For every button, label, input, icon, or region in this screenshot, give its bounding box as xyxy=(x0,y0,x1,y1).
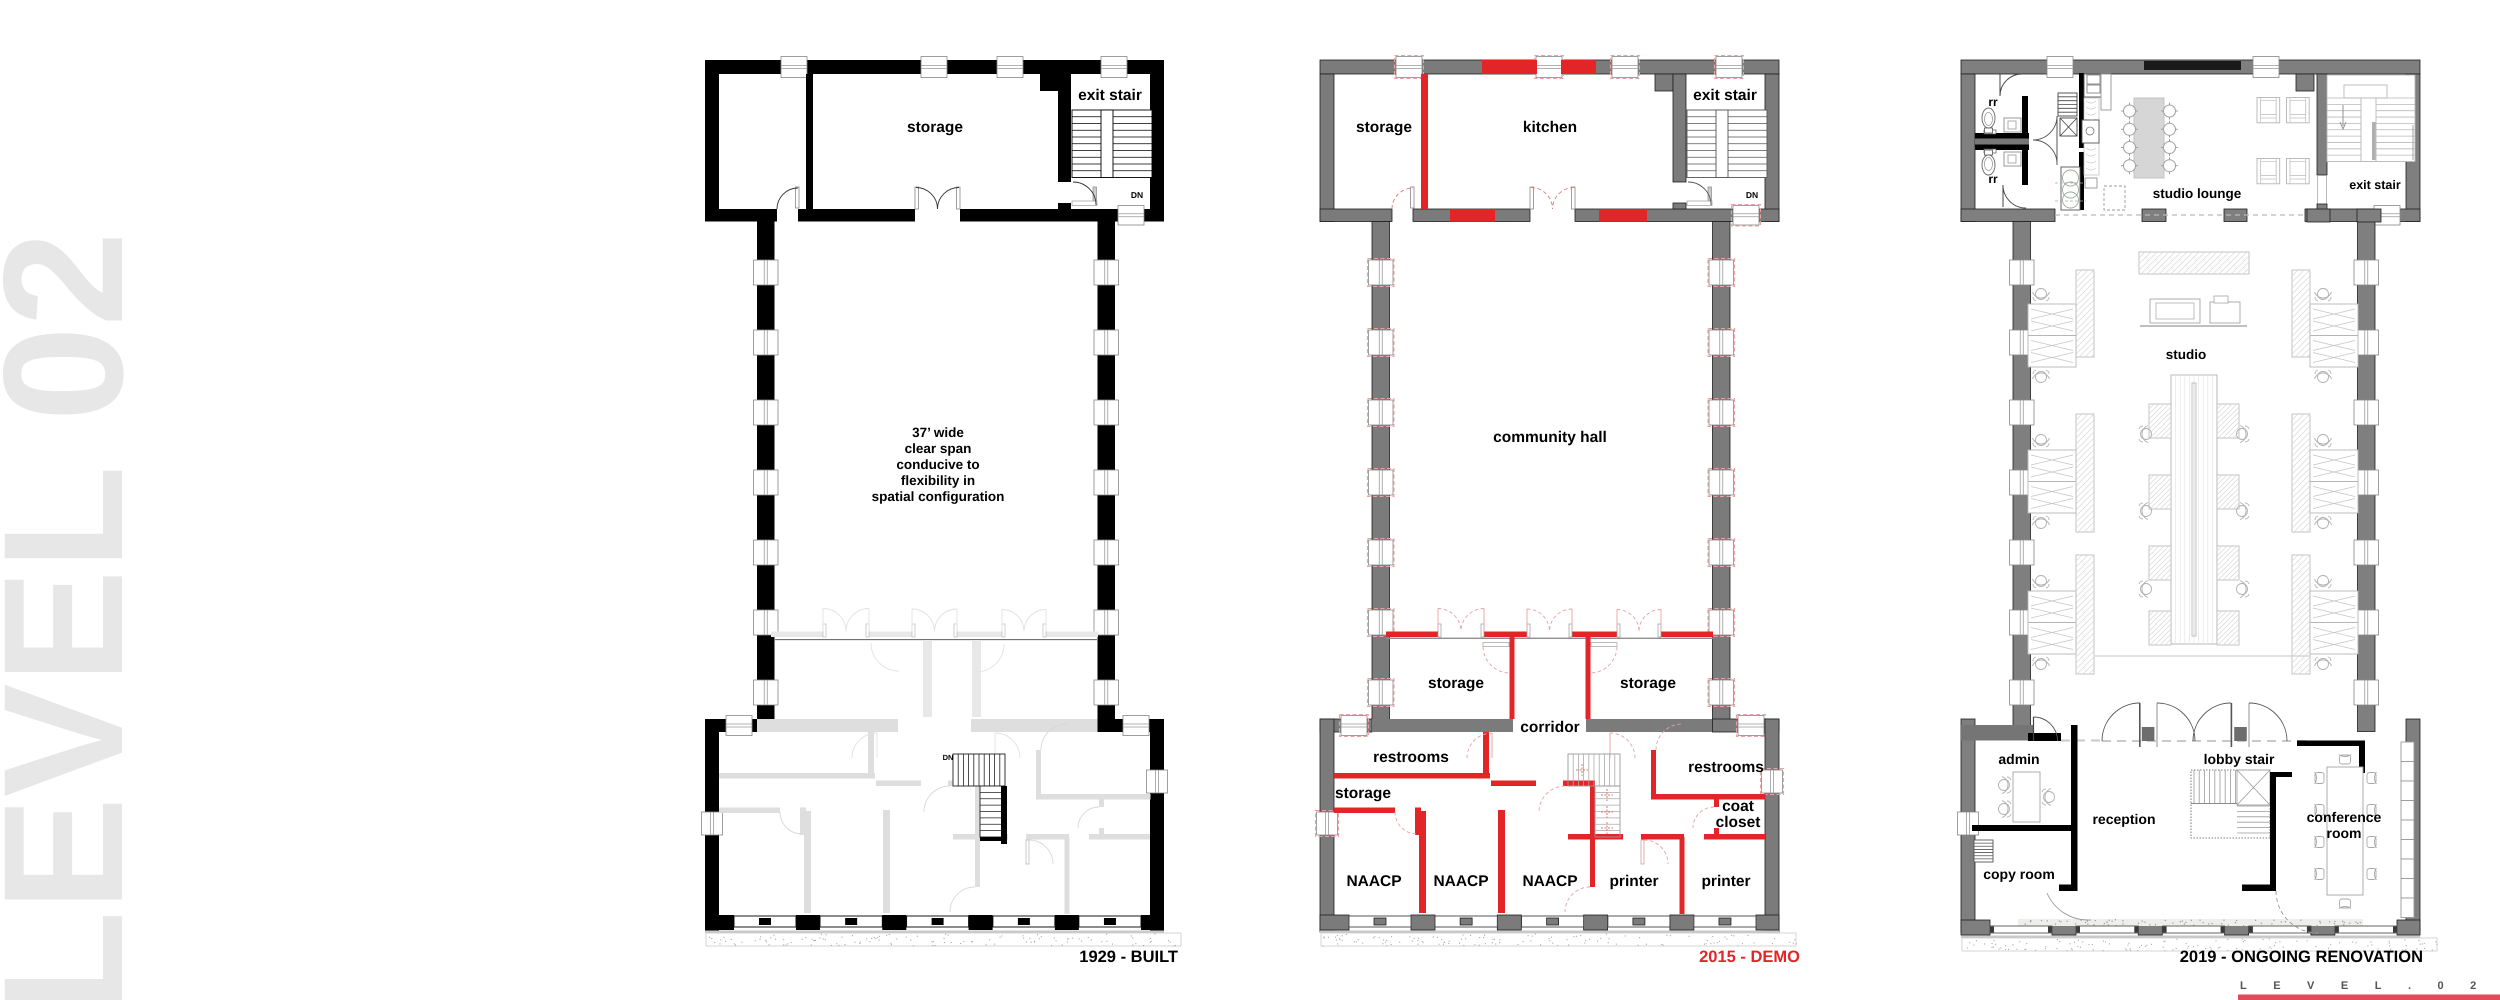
svg-text:2015 - DEMO: 2015 - DEMO xyxy=(1699,948,1800,966)
svg-text:DN: DN xyxy=(943,753,954,762)
svg-text:clear span: clear span xyxy=(905,441,972,456)
svg-text:restrooms: restrooms xyxy=(1373,749,1449,766)
svg-text:1929 - BUILT: 1929 - BUILT xyxy=(1079,948,1178,966)
svg-text:room: room xyxy=(2327,825,2362,841)
svg-text:storage: storage xyxy=(1428,675,1484,692)
svg-text:flexibility in: flexibility in xyxy=(901,473,975,488)
svg-text:LEVEL 02: LEVEL 02 xyxy=(0,232,159,1000)
svg-text:admin: admin xyxy=(1998,751,2039,767)
svg-text:printer: printer xyxy=(1701,873,1750,890)
svg-text:exit stair: exit stair xyxy=(1693,87,1757,104)
svg-text:community hall: community hall xyxy=(1493,429,1607,446)
svg-text:2019 - ONGOING RENOVATION: 2019 - ONGOING RENOVATION xyxy=(2180,948,2423,966)
svg-text:storage: storage xyxy=(907,119,963,136)
svg-text:studio lounge: studio lounge xyxy=(2153,186,2242,201)
svg-text:studio: studio xyxy=(2166,347,2207,362)
svg-text:storage: storage xyxy=(1335,785,1391,802)
svg-text:rr: rr xyxy=(1988,172,1998,186)
svg-text:conference: conference xyxy=(2307,809,2382,825)
svg-text:coat: coat xyxy=(1722,798,1754,815)
svg-text:copy room: copy room xyxy=(1983,866,2055,882)
svg-text:exit stair: exit stair xyxy=(2349,178,2401,192)
svg-text:lobby stair: lobby stair xyxy=(2204,751,2275,767)
svg-text:LEVEL.02: LEVEL.02 xyxy=(2240,980,2500,992)
svg-text:corridor: corridor xyxy=(1520,719,1579,736)
svg-text:reception: reception xyxy=(2092,811,2155,827)
svg-text:storage: storage xyxy=(1356,119,1412,136)
svg-text:spatial configuration: spatial configuration xyxy=(872,489,1005,504)
svg-text:DN: DN xyxy=(1746,190,1758,200)
svg-text:37’ wide: 37’ wide xyxy=(912,425,964,440)
svg-text:kitchen: kitchen xyxy=(1523,119,1577,136)
svg-text:storage: storage xyxy=(1620,675,1676,692)
svg-text:closet: closet xyxy=(1716,814,1761,831)
svg-text:NAACP: NAACP xyxy=(1433,873,1488,890)
svg-text:rr: rr xyxy=(1988,95,1998,109)
svg-text:exit stair: exit stair xyxy=(1078,87,1142,104)
svg-text:NAACP: NAACP xyxy=(1522,873,1577,890)
svg-text:DN: DN xyxy=(1131,190,1143,200)
svg-text:conducive to: conducive to xyxy=(896,457,979,472)
svg-text:NAACP: NAACP xyxy=(1346,873,1401,890)
svg-text:printer: printer xyxy=(1609,873,1658,890)
svg-text:restrooms: restrooms xyxy=(1688,759,1764,776)
